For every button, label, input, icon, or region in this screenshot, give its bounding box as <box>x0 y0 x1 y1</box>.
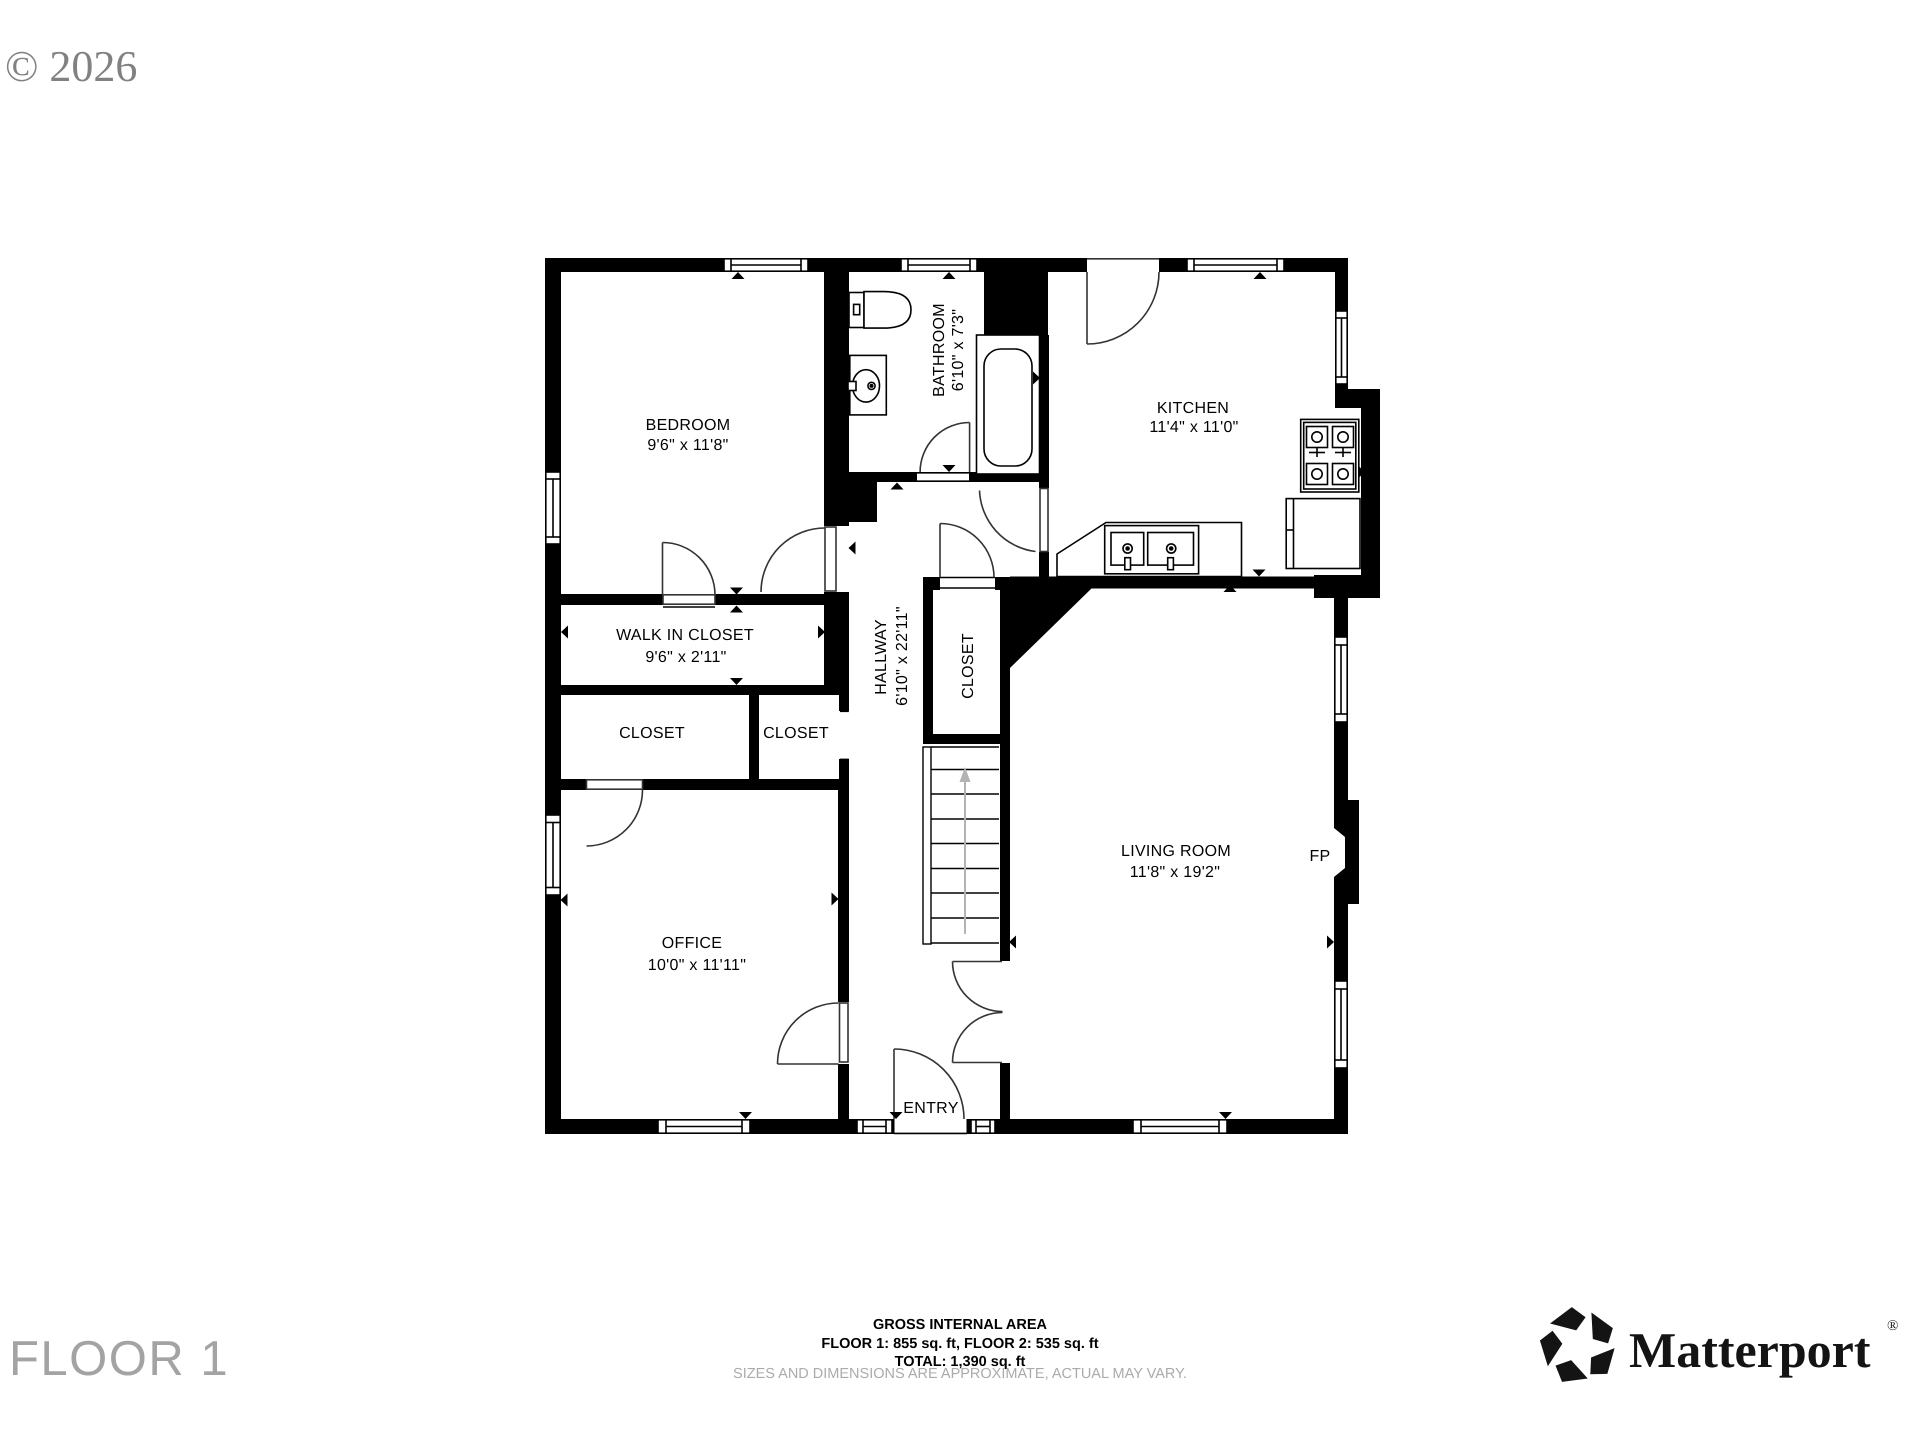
svg-text:WALK IN CLOSET: WALK IN CLOSET <box>616 627 754 644</box>
svg-text:®: ® <box>1887 1318 1898 1334</box>
svg-text:BEDROOM: BEDROOM <box>646 417 731 434</box>
svg-text:11'8" x 19'2": 11'8" x 19'2" <box>1130 864 1220 881</box>
svg-text:GROSS INTERNAL AREA: GROSS INTERNAL AREA <box>873 1317 1048 1333</box>
svg-text:LIVING ROOM: LIVING ROOM <box>1121 843 1231 860</box>
svg-text:ENTRY: ENTRY <box>903 1100 958 1117</box>
svg-text:FP: FP <box>1309 848 1330 865</box>
svg-text:CLOSET: CLOSET <box>763 725 829 742</box>
svg-text:6'10" x 22'11": 6'10" x 22'11" <box>894 606 911 706</box>
svg-text:CLOSET: CLOSET <box>619 725 685 742</box>
svg-text:KITCHEN: KITCHEN <box>1157 400 1229 417</box>
svg-text:11'4" x 11'0": 11'4" x 11'0" <box>1149 419 1238 436</box>
svg-text:6'10" x 7'3": 6'10" x 7'3" <box>950 309 967 391</box>
svg-text:CLOSET: CLOSET <box>960 633 977 699</box>
svg-text:SIZES AND DIMENSIONS ARE APPRO: SIZES AND DIMENSIONS ARE APPROXIMATE, AC… <box>733 1366 1187 1382</box>
svg-text:10'0" x 11'11": 10'0" x 11'11" <box>648 957 746 974</box>
svg-text:© 2026: © 2026 <box>5 42 137 91</box>
svg-text:Matterport: Matterport <box>1629 1322 1871 1378</box>
svg-text:FLOOR 1: 855 sq. ft, FLOOR 2:: FLOOR 1: 855 sq. ft, FLOOR 2: 535 sq. ft <box>821 1336 1098 1352</box>
svg-text:9'6" x 11'8": 9'6" x 11'8" <box>647 437 728 454</box>
svg-text:FLOOR 1: FLOOR 1 <box>9 1332 229 1386</box>
svg-text:OFFICE: OFFICE <box>662 935 722 952</box>
svg-text:BATHROOM: BATHROOM <box>931 303 948 397</box>
svg-text:9'6" x 2'11": 9'6" x 2'11" <box>645 649 726 666</box>
svg-text:HALLWAY: HALLWAY <box>873 619 890 695</box>
